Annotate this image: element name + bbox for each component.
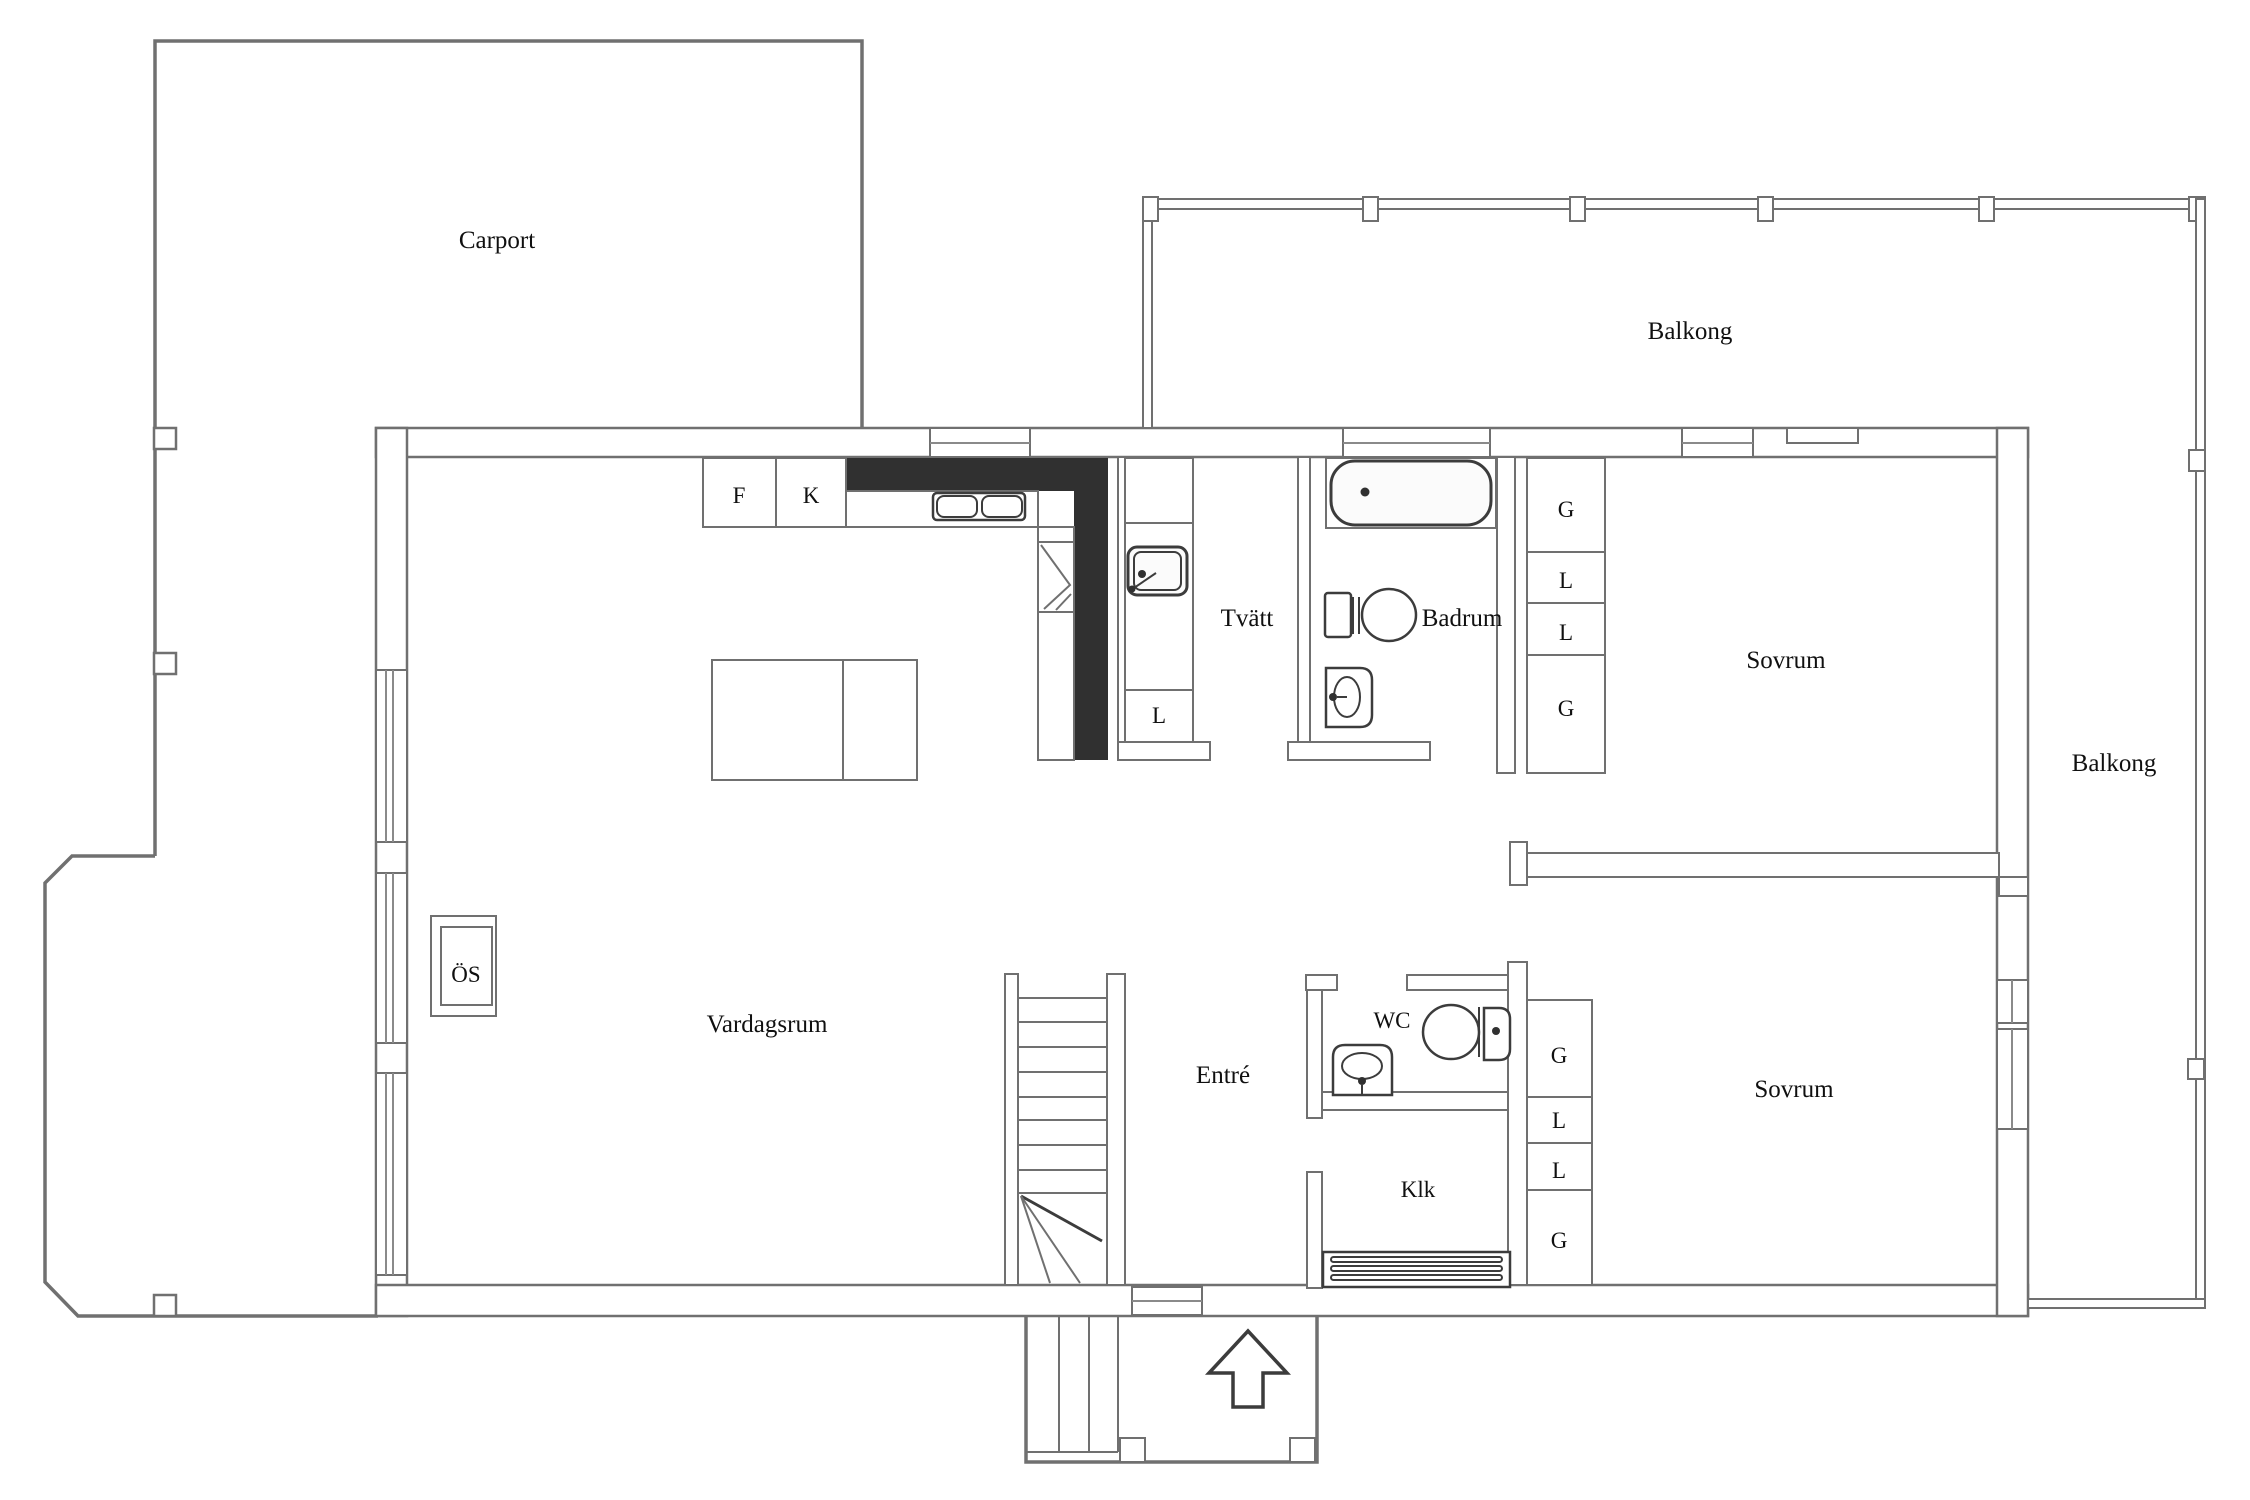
stairs	[1005, 974, 1125, 1285]
fridge-label: F	[733, 483, 746, 508]
porch-outline	[1026, 1316, 1317, 1462]
laundry-counter	[1125, 458, 1193, 742]
toilet-icon	[1423, 1005, 1479, 1059]
terrace-edge	[45, 856, 378, 1316]
wc-north-wall	[1407, 975, 1510, 990]
stove-label: K	[803, 483, 820, 508]
room-label-bedroom-upper: Sovrum	[1746, 647, 1826, 674]
room-label-laundry: Tvätt	[1221, 605, 1274, 632]
laundry-bath-wall	[1298, 457, 1310, 742]
porch-post	[1120, 1438, 1145, 1462]
wc-west-wall	[1307, 990, 1322, 1118]
drain	[1138, 570, 1146, 578]
balcony-railing	[2196, 199, 2205, 1308]
appliance-box	[1038, 542, 1074, 612]
room-label-closet: Klk	[1401, 1177, 1436, 1202]
living-window	[376, 670, 407, 842]
closet-label: L	[1559, 620, 1573, 645]
closet-column-upper: G L L G	[1527, 458, 1605, 773]
toilet-icon	[1362, 589, 1416, 641]
wc-north-wall	[1306, 975, 1337, 990]
wall-pier	[1510, 842, 1527, 885]
bedroom-divider-wall	[1527, 853, 1999, 877]
entrance-arrow-icon	[1209, 1331, 1287, 1407]
entrance-porch	[1026, 1316, 1317, 1462]
balcony-railing	[1143, 199, 2205, 209]
wc-fixtures	[1333, 1005, 1510, 1095]
closet-west-wall	[1307, 1172, 1322, 1288]
stairwell-wall	[1074, 491, 1108, 760]
floor-plan-page: G L L G G L L G	[0, 0, 2250, 1500]
kitchen-wall	[846, 458, 1108, 491]
closet-label: G	[1558, 497, 1575, 522]
stair-stringer	[1107, 974, 1125, 1285]
room-label-balcony-right: Balkong	[2072, 750, 2157, 777]
stair-stringer	[1005, 974, 1018, 1285]
dining-table	[712, 660, 917, 780]
railing-post	[2189, 450, 2205, 471]
balcony-floor-edge	[2028, 1299, 2205, 1308]
closet-label: G	[1551, 1228, 1568, 1253]
laundry-south-wall	[1118, 742, 1210, 760]
closet-label: G	[1558, 696, 1575, 721]
balcony-railing	[1143, 199, 1152, 428]
post	[154, 1295, 176, 1316]
room-label-entrance: Entré	[1196, 1062, 1250, 1089]
laundry-units	[1125, 458, 1193, 742]
room-label-bathroom: Badrum	[1422, 605, 1503, 632]
railing-post	[1570, 197, 1585, 221]
balcony-top	[1143, 197, 2205, 428]
railing-post	[1758, 197, 1773, 221]
railing-post	[1143, 197, 1158, 221]
room-label-bedroom-lower: Sovrum	[1754, 1076, 1834, 1103]
railing-post	[1979, 197, 1994, 221]
fireplace: ÖS	[431, 916, 496, 1016]
closet-column-lower: G L L G	[1527, 1000, 1592, 1285]
bathtub-icon	[1331, 461, 1491, 525]
toilet-tank	[1325, 593, 1351, 637]
kitchen-sink-icon	[933, 493, 1025, 520]
railing-post	[2188, 1059, 2204, 1079]
terrace-boundary	[45, 428, 378, 1316]
room-label-carport: Carport	[459, 227, 535, 254]
railing-post	[1363, 197, 1378, 221]
floor-plan: G L L G G L L G	[0, 0, 2250, 1500]
faucet	[1329, 693, 1337, 701]
klk-rack	[1323, 1252, 1510, 1287]
wall-step	[1999, 877, 2028, 896]
closet-label: L	[1552, 1158, 1566, 1183]
room-label-balcony-top: Balkong	[1648, 318, 1733, 345]
closet-label: L	[1552, 1108, 1566, 1133]
laundry-cabinet-label: L	[1152, 703, 1166, 728]
living-window	[376, 873, 407, 1043]
room-label-wc: WC	[1373, 1008, 1410, 1033]
post	[154, 428, 176, 449]
balcony-door	[1787, 428, 1858, 443]
east-wall	[1997, 428, 2028, 1316]
porch-post	[1290, 1438, 1315, 1462]
fireplace-label: ÖS	[451, 962, 480, 987]
bathroom-south-wall	[1288, 742, 1430, 760]
closet-east-wall	[1508, 962, 1527, 1285]
bathroom-fixtures	[1325, 458, 1496, 727]
room-label-living-room: Vardagsrum	[707, 1011, 828, 1038]
faucet	[1358, 1077, 1366, 1085]
living-window	[376, 1073, 407, 1275]
closet-label: L	[1559, 568, 1573, 593]
closet-label: G	[1551, 1043, 1568, 1068]
north-wall	[376, 428, 2028, 457]
post	[154, 653, 176, 674]
drain	[1361, 488, 1370, 497]
